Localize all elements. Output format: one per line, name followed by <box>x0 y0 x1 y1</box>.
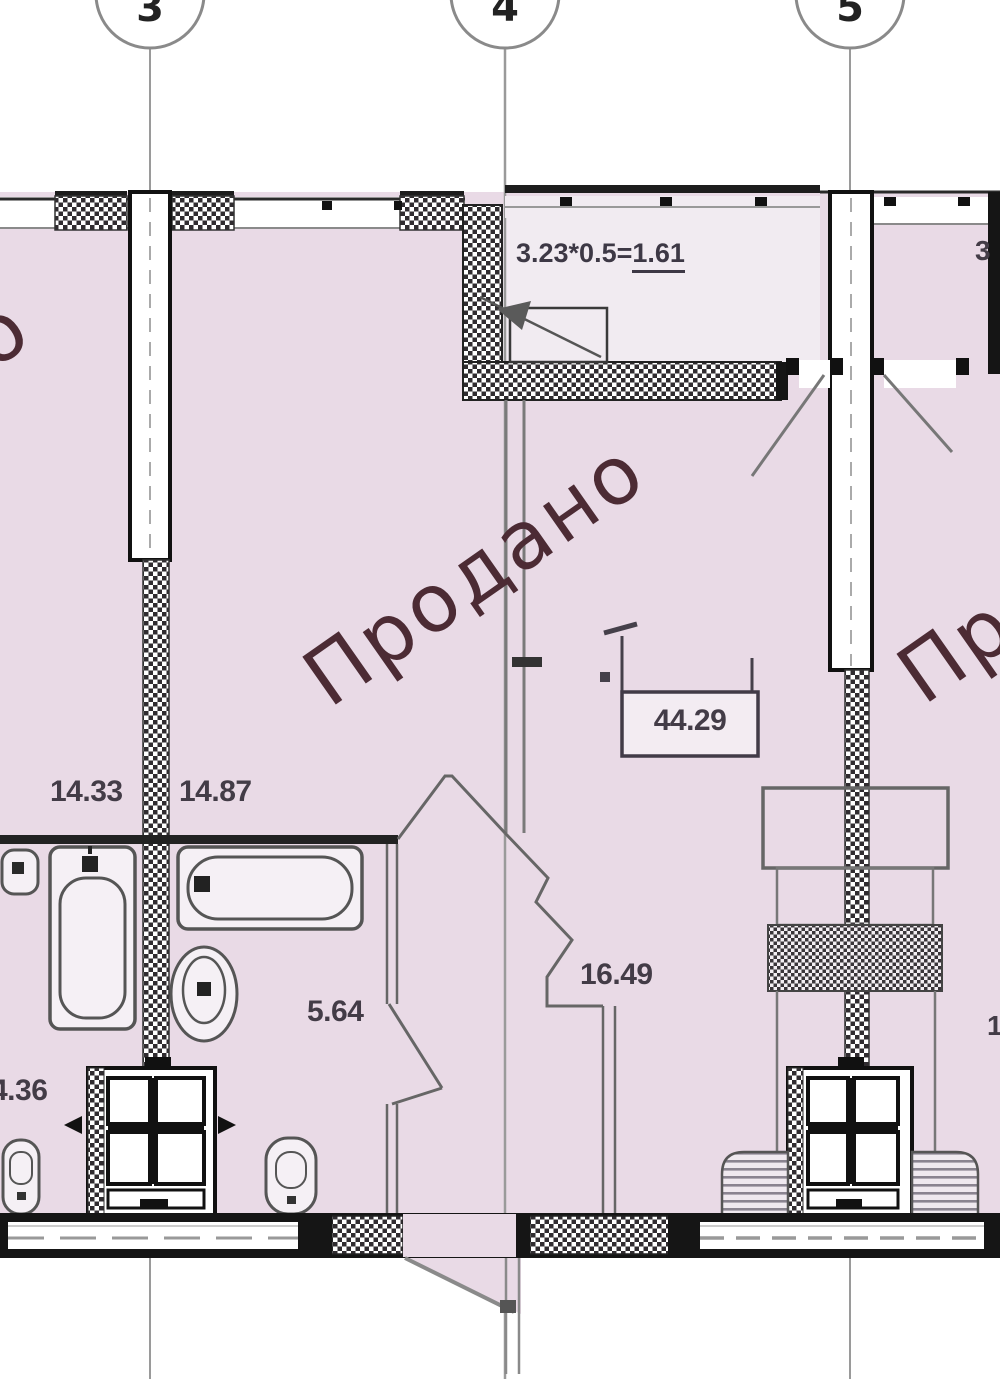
area-room-left: 14.33 <box>50 777 123 807</box>
landing-wall-vertical <box>463 205 502 362</box>
formula-partial-right: 3 <box>975 237 991 265</box>
axis-label-5: 5 <box>826 0 874 28</box>
door-opening <box>403 1214 516 1257</box>
right-unit-wall-hatch <box>845 670 869 1070</box>
wall-hatch <box>55 196 127 230</box>
area-room-right: 14.87 <box>179 777 252 807</box>
riser-hatch <box>768 925 942 991</box>
left-unit-wall-hatch <box>143 560 169 1072</box>
balcony-area-formula: 3.23*0.5=1.61 <box>516 240 685 267</box>
axis-label-4: 4 <box>481 0 529 28</box>
area-hallway: 5.64 <box>307 997 363 1027</box>
area-living-room: 16.49 <box>580 960 653 990</box>
axis-label-3: 3 <box>126 0 174 28</box>
parapet <box>505 185 820 193</box>
wall-hatch <box>530 1216 670 1254</box>
wall-hatch <box>400 196 464 230</box>
formula-result: 1.61 <box>632 238 685 273</box>
floor-plan: 3 4 5 14.33 14.87 5.64 16.49 4.36 44.29 … <box>0 0 1000 1379</box>
formula-expression: 3.23*0.5= <box>516 238 632 268</box>
shaft-left <box>88 1057 215 1215</box>
area-partial-right: 1 <box>987 1012 1000 1040</box>
floor-plan-drawing <box>0 0 1000 1379</box>
area-bathroom: 4.36 <box>0 1076 47 1106</box>
wall-hatch <box>332 1216 403 1254</box>
area-total: 44.29 <box>622 706 758 736</box>
counter-left <box>722 1152 788 1215</box>
landing-wall-horizontal <box>463 362 781 400</box>
bathroom-top-wall <box>0 835 398 844</box>
wall-hatch <box>172 196 234 230</box>
right-edge-wall <box>988 192 1000 374</box>
bottom-exterior-wall <box>0 1213 1000 1379</box>
right-unit-wall <box>830 192 872 670</box>
counter-right <box>912 1152 978 1215</box>
